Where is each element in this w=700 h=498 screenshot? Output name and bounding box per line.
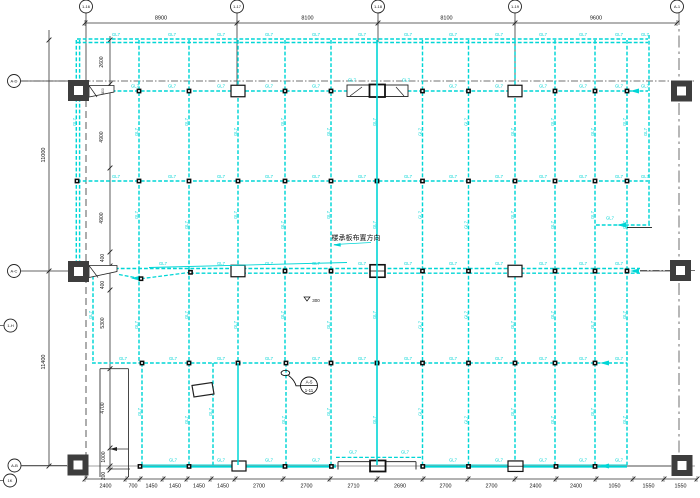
svg-text:700: 700: [129, 484, 138, 490]
svg-text:GL7: GL7: [404, 174, 413, 179]
svg-text:GL7: GL7: [579, 458, 588, 463]
svg-text:1K: 1K: [8, 478, 13, 483]
svg-text:GL7: GL7: [265, 261, 274, 266]
svg-text:1450: 1450: [169, 484, 181, 490]
svg-text:GL7: GL7: [417, 407, 422, 416]
svg-text:GL7: GL7: [312, 458, 321, 463]
svg-text:GL7: GL7: [417, 210, 422, 219]
svg-text:GL7: GL7: [404, 32, 413, 37]
svg-text:4700: 4700: [100, 402, 106, 413]
svg-text:GL7: GL7: [401, 450, 410, 455]
svg-text:GL7: GL7: [131, 84, 140, 89]
svg-text:GL7: GL7: [615, 261, 624, 266]
svg-text:GL7: GL7: [590, 320, 595, 329]
svg-text:GL7: GL7: [184, 220, 189, 229]
svg-text:GL7: GL7: [622, 117, 627, 126]
svg-text:GL7: GL7: [184, 117, 189, 126]
svg-text:GL7: GL7: [449, 174, 458, 179]
svg-text:GL7: GL7: [449, 356, 458, 361]
svg-text:GL7: GL7: [590, 210, 595, 219]
svg-text:GL7: GL7: [463, 415, 468, 424]
svg-text:GL7: GL7: [372, 310, 377, 319]
svg-text:GL7: GL7: [88, 310, 93, 319]
svg-text:GL7: GL7: [622, 415, 627, 424]
svg-text:GL7: GL7: [550, 117, 555, 126]
svg-text:GL7: GL7: [615, 32, 624, 37]
svg-text:GL7: GL7: [579, 356, 588, 361]
svg-text:1-18: 1-18: [374, 4, 383, 9]
svg-text:GL7: GL7: [579, 261, 588, 266]
svg-text:GL7: GL7: [169, 458, 178, 463]
svg-text:GL7: GL7: [265, 84, 274, 89]
svg-text:GL7: GL7: [134, 320, 139, 329]
svg-text:GL7: GL7: [641, 32, 650, 37]
svg-text:GL7: GL7: [539, 356, 548, 361]
svg-text:1450: 1450: [193, 484, 205, 490]
svg-text:GL7: GL7: [265, 356, 274, 361]
svg-text:2400: 2400: [570, 484, 582, 490]
svg-text:GL7: GL7: [495, 261, 504, 266]
svg-text:GL7: GL7: [449, 458, 458, 463]
svg-text:GL7: GL7: [550, 310, 555, 319]
svg-text:GL7: GL7: [643, 127, 648, 136]
svg-text:11000: 11000: [41, 148, 47, 163]
svg-text:GL7: GL7: [233, 320, 238, 329]
svg-text:GL7: GL7: [372, 415, 377, 424]
svg-text:GL7: GL7: [233, 210, 238, 219]
svg-text:楼承板布置方向: 楼承板布置方向: [332, 233, 381, 242]
svg-text:GL7: GL7: [217, 84, 226, 89]
svg-text:A-D: A-D: [11, 78, 18, 83]
svg-text:GL7: GL7: [539, 174, 548, 179]
svg-text:GL7: GL7: [348, 78, 357, 83]
svg-text:GL7: GL7: [495, 356, 504, 361]
svg-text:8100: 8100: [440, 16, 452, 22]
svg-text:800: 800: [101, 88, 105, 94]
svg-text:GL7: GL7: [208, 407, 213, 416]
svg-text:GL7: GL7: [579, 174, 588, 179]
svg-text:GL7: GL7: [550, 220, 555, 229]
svg-text:GL7: GL7: [119, 356, 128, 361]
svg-text:GL7: GL7: [281, 415, 286, 424]
svg-text:GL7: GL7: [112, 32, 121, 37]
svg-text:GL7: GL7: [312, 32, 321, 37]
svg-text:GL7: GL7: [449, 32, 458, 37]
svg-text:GL7: GL7: [168, 84, 177, 89]
svg-text:2690: 2690: [394, 484, 406, 490]
svg-text:GL7: GL7: [217, 174, 226, 179]
svg-text:GL7: GL7: [358, 32, 367, 37]
svg-text:1450: 1450: [146, 484, 158, 490]
svg-text:A-C: A-C: [11, 268, 18, 273]
svg-text:GL7: GL7: [312, 84, 321, 89]
svg-text:GL7: GL7: [312, 261, 321, 266]
svg-text:GL7: GL7: [404, 356, 413, 361]
svg-text:GL7: GL7: [495, 84, 504, 89]
svg-text:GL7: GL7: [265, 174, 274, 179]
svg-text:GL7: GL7: [312, 356, 321, 361]
svg-text:A-B: A-B: [11, 463, 18, 468]
svg-text:GL7: GL7: [495, 458, 504, 463]
svg-text:GL7: GL7: [349, 450, 358, 455]
svg-text:GL7: GL7: [112, 174, 121, 179]
svg-text:GL7: GL7: [539, 32, 548, 37]
svg-text:GL7: GL7: [184, 310, 189, 319]
svg-text:4900: 4900: [99, 131, 105, 142]
svg-text:1000: 1000: [101, 451, 107, 462]
svg-text:GL7: GL7: [326, 127, 331, 136]
svg-text:GL7: GL7: [326, 407, 331, 416]
svg-text:1-H: 1-H: [7, 323, 14, 328]
svg-text:GL7: GL7: [134, 127, 139, 136]
svg-text:4900: 4900: [99, 212, 105, 223]
svg-text:GL7: GL7: [312, 174, 321, 179]
svg-text:2700: 2700: [253, 484, 265, 490]
svg-text:2700: 2700: [486, 484, 498, 490]
svg-text:2600: 2600: [99, 56, 105, 67]
svg-text:GL7: GL7: [372, 117, 377, 126]
svg-text:GL7: GL7: [137, 407, 142, 416]
svg-text:GL7: GL7: [463, 220, 468, 229]
svg-text:GL7: GL7: [217, 458, 226, 463]
svg-text:GL7: GL7: [217, 32, 226, 37]
svg-text:1-17: 1-17: [233, 4, 242, 9]
svg-text:GL7: GL7: [449, 261, 458, 266]
svg-text:1450: 1450: [217, 484, 229, 490]
svg-text:2700: 2700: [440, 484, 452, 490]
svg-text:GL7: GL7: [615, 84, 624, 89]
svg-text:GL7: GL7: [510, 320, 515, 329]
svg-text:GL7: GL7: [463, 117, 468, 126]
svg-text:1050: 1050: [609, 484, 621, 490]
svg-text:1550: 1550: [675, 484, 687, 490]
svg-text:GL7: GL7: [280, 117, 285, 126]
svg-text:GL7: GL7: [641, 84, 650, 89]
svg-text:GL7: GL7: [622, 220, 627, 229]
svg-text:GL7: GL7: [606, 216, 615, 221]
svg-text:GL7: GL7: [159, 261, 168, 266]
svg-text:8100: 8100: [301, 16, 313, 22]
svg-text:GL7: GL7: [449, 84, 458, 89]
svg-text:GL7: GL7: [168, 32, 177, 37]
svg-text:A-5: A-5: [306, 380, 313, 385]
svg-text:GL7: GL7: [358, 174, 367, 179]
svg-text:GL7: GL7: [590, 407, 595, 416]
svg-text:300: 300: [312, 298, 320, 303]
svg-text:GL7: GL7: [168, 174, 177, 179]
svg-text:400: 400: [100, 281, 106, 290]
svg-text:9600: 9600: [590, 16, 602, 22]
svg-text:GL7: GL7: [510, 210, 515, 219]
svg-text:5300: 5300: [100, 317, 106, 328]
svg-text:GL7: GL7: [615, 356, 624, 361]
svg-text:GL7: GL7: [495, 174, 504, 179]
svg-text:A-1: A-1: [674, 4, 681, 9]
svg-text:2400: 2400: [100, 484, 112, 490]
svg-text:GL7: GL7: [463, 310, 468, 319]
svg-text:GL7: GL7: [641, 174, 650, 179]
svg-text:GL7: GL7: [358, 356, 367, 361]
svg-text:GL7: GL7: [495, 32, 504, 37]
svg-text:GL7: GL7: [579, 32, 588, 37]
svg-text:1-16: 1-16: [82, 4, 91, 9]
svg-text:GL7: GL7: [579, 84, 588, 89]
svg-text:GL7: GL7: [358, 261, 367, 266]
svg-text:GL7: GL7: [404, 261, 413, 266]
svg-text:GL7: GL7: [615, 458, 624, 463]
svg-text:GL7: GL7: [265, 458, 274, 463]
svg-text:GL7: GL7: [265, 32, 274, 37]
svg-text:GL7: GL7: [326, 210, 331, 219]
svg-text:GL7: GL7: [417, 320, 422, 329]
svg-text:GL7: GL7: [372, 220, 377, 229]
svg-text:GL7: GL7: [417, 127, 422, 136]
svg-text:GL7: GL7: [280, 220, 285, 229]
svg-text:11400: 11400: [41, 355, 47, 370]
svg-text:GL7: GL7: [510, 407, 515, 416]
svg-text:GL7: GL7: [402, 78, 411, 83]
svg-text:GL7: GL7: [169, 356, 178, 361]
svg-text:GL7: GL7: [217, 356, 226, 361]
svg-text:GL7: GL7: [539, 458, 548, 463]
svg-text:GL7: GL7: [217, 261, 226, 266]
svg-text:GL7: GL7: [510, 127, 515, 136]
svg-text:GL7: GL7: [539, 261, 548, 266]
svg-text:GL7: GL7: [550, 415, 555, 424]
svg-text:GL7: GL7: [72, 117, 77, 126]
svg-text:GL7: GL7: [184, 415, 189, 424]
svg-text:1550: 1550: [643, 484, 655, 490]
svg-text:GL7: GL7: [622, 310, 627, 319]
svg-text:GL7: GL7: [539, 84, 548, 89]
svg-text:2400: 2400: [530, 484, 542, 490]
svg-text:8900: 8900: [155, 16, 167, 22]
svg-text:GL7: GL7: [615, 174, 624, 179]
svg-text:2700: 2700: [301, 484, 313, 490]
svg-text:GL7: GL7: [326, 320, 331, 329]
svg-text:1-19: 1-19: [511, 4, 520, 9]
svg-text:1-11: 1-11: [305, 388, 314, 393]
svg-text:GL7: GL7: [590, 127, 595, 136]
svg-text:GL7: GL7: [134, 210, 139, 219]
svg-text:2710: 2710: [348, 484, 360, 490]
svg-text:GL7: GL7: [233, 127, 238, 136]
svg-text:400: 400: [100, 254, 106, 263]
svg-text:GL7: GL7: [280, 310, 285, 319]
